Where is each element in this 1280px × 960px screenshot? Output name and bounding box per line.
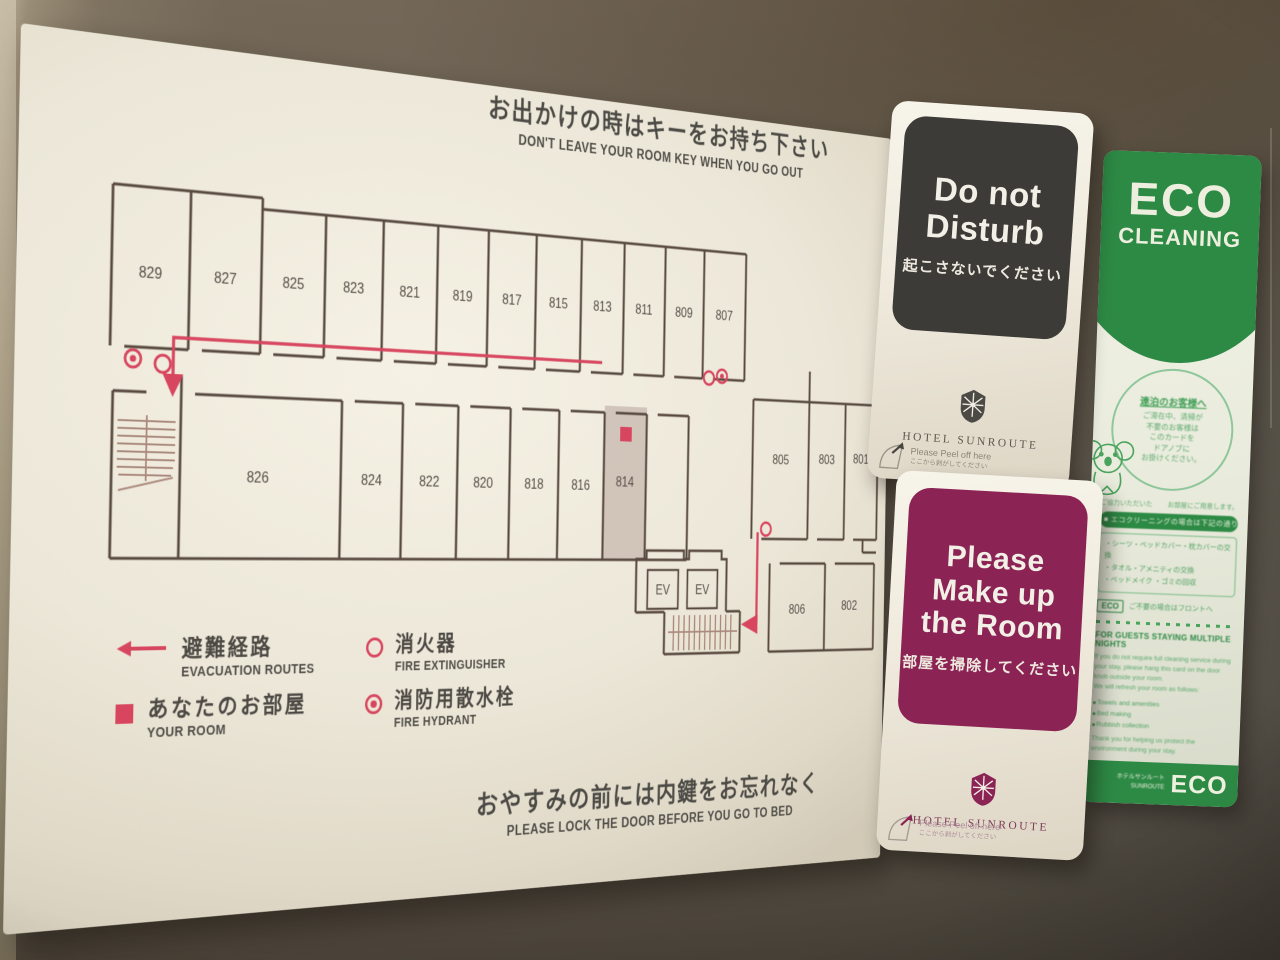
legend-evac-jp: 避難経路 xyxy=(181,635,315,661)
makeup-japanese: 部屋を掃除してください xyxy=(902,650,1078,681)
eco-pill-banner: ■ エコクリーニングの場合は下記の通り xyxy=(1100,511,1239,532)
makeup-panel: Please Make up the Room 部屋を掃除してください xyxy=(897,487,1089,733)
room-label: 809 xyxy=(675,305,693,321)
legend-hyd-jp: 消防用散水栓 xyxy=(394,686,516,713)
room-label: 802 xyxy=(841,599,857,613)
room-label: 820 xyxy=(473,476,493,492)
eco-circle-line: お掛けください。 xyxy=(1141,453,1201,466)
room-label: 805 xyxy=(772,453,789,468)
eco-note: ECO ご不要の場合はフロントへ xyxy=(1096,599,1234,617)
peel-off-note: Please Peel off here ここから剥がしてください xyxy=(884,810,1000,848)
legend-fire-extinguisher: 消火器 FIRE EXTINGUISHER xyxy=(365,631,516,674)
legend-hyd-en: FIRE HYDRANT xyxy=(394,711,515,730)
eco-circle-note: 連泊のお客様へ ご滞在中、清掃が 不要のお客様は このカードを ドアノブに お掛… xyxy=(1109,367,1236,494)
dnd-line2: Disturb xyxy=(925,207,1046,252)
room-label: 829 xyxy=(139,264,163,283)
evacuation-arrow-icon xyxy=(117,637,169,659)
make-up-room-hanger: Please Make up the Room 部屋を掃除してください HOTE… xyxy=(876,470,1104,861)
fire-extinguisher-icon xyxy=(366,637,384,657)
eco-row-right: お部屋にご用意します。 xyxy=(1168,499,1239,512)
stairs-left xyxy=(116,414,175,491)
eco-bullet-list: Towels and amenities Bed making Rubbish … xyxy=(1092,697,1231,735)
eco-circle-heading: 連泊のお客様へ xyxy=(1140,394,1207,411)
eco-english-heading: FOR GUESTS STAYING MULTIPLE NIGHTS xyxy=(1095,630,1234,653)
eco-footer-band: ホテルサンルート SUNROUTE ECO xyxy=(1079,760,1238,808)
plan-walls xyxy=(104,184,881,668)
legend-ext-jp: 消火器 xyxy=(395,632,506,657)
elevator-block: EV EV xyxy=(647,570,717,609)
eco-divider xyxy=(1096,620,1234,628)
floor-plan: EV EV 829 8 xyxy=(91,180,884,679)
dnd-panel: Do not Disturb 起こさないでください xyxy=(891,115,1080,341)
room-label: 811 xyxy=(635,302,652,318)
eco-mini-badge: ECO xyxy=(1096,599,1124,613)
room-label: 819 xyxy=(452,288,472,305)
board-top-title: お出かけの時はキーをお持ち下さい DON'T LEAVE YOUR ROOM K… xyxy=(462,82,850,187)
room-label: 822 xyxy=(419,474,440,490)
room-label: 823 xyxy=(343,280,364,298)
room-label: 825 xyxy=(282,275,304,293)
floor-map-board: お出かけの時はキーをお持ち下さい DON'T LEAVE YOUR ROOM K… xyxy=(3,23,891,935)
dnd-japanese: 起こさないでください xyxy=(902,255,1063,287)
legend-ext-en: FIRE EXTINGUISHER xyxy=(395,656,506,673)
eco-row-left: ご協力いただいた xyxy=(1100,496,1152,508)
eco-footer-logo: ECO xyxy=(1170,770,1228,801)
room-label: 801 xyxy=(853,453,869,467)
board-bottom-title: おやすみの前には内鍵をお忘れなく PLEASE LOCK THE DOOR BE… xyxy=(450,762,840,845)
eco-cleaning-card: ECO CLEANING 連泊のお客様へ ご滞在中、清掃が 不要のお客様は この… xyxy=(1079,150,1262,808)
eco-body: 連泊のお客様へ ご滞在中、清掃が 不要のお客様は このカードを ドアノブに お掛… xyxy=(1081,366,1254,760)
room-label: 816 xyxy=(571,478,590,493)
room-label: 826 xyxy=(246,470,268,487)
sunroute-emblem-icon xyxy=(967,770,999,808)
room-label: 807 xyxy=(716,308,733,324)
eco-header-title: ECO CLEANING xyxy=(1100,174,1261,254)
do-not-disturb-hanger: Do not Disturb 起こさないでください HOTEL SUNROUTE… xyxy=(867,100,1095,491)
peel-corner-icon xyxy=(875,438,907,472)
eco-footer-brand: ホテルサンルート SUNROUTE xyxy=(1116,773,1165,793)
eco-english-footer-note: Thank you for helping us protect the env… xyxy=(1091,734,1230,759)
legend-evac-en: EVACUATION ROUTES xyxy=(181,661,314,680)
sunroute-emblem-icon xyxy=(957,387,989,425)
eco-title: ECO xyxy=(1101,174,1261,226)
room-label: 803 xyxy=(819,453,835,468)
eco-row-note: ご協力いただいた お部屋にご用意します。 xyxy=(1100,496,1238,511)
peel-corner-icon xyxy=(884,810,916,844)
room-label: 814 xyxy=(616,475,635,490)
eco-english-paragraph: If you do not require full cleaning serv… xyxy=(1093,652,1232,698)
stairs-right xyxy=(668,614,738,650)
your-room-icon xyxy=(115,704,133,724)
evacuation-route-arrows xyxy=(157,337,761,645)
elevator-label: EV xyxy=(695,583,710,598)
legend-room-jp: あなたのお部屋 xyxy=(147,693,307,723)
room-label: 818 xyxy=(524,477,543,493)
your-room-marker xyxy=(620,427,632,442)
fire-equipment-markers xyxy=(122,335,774,536)
makeup-line3: the Room xyxy=(920,606,1064,647)
eco-footer-brand-en: SUNROUTE xyxy=(1116,782,1164,793)
room-label: 806 xyxy=(789,603,806,617)
room-label: 817 xyxy=(502,292,522,309)
legend-your-room: あなたのお部屋 YOUR ROOM xyxy=(115,693,314,742)
room-label: 821 xyxy=(399,284,420,301)
elevator-label: EV xyxy=(656,583,671,598)
legend-evacuation-routes: 避難経路 EVACUATION ROUTES xyxy=(116,635,315,681)
makeup-line1: Please xyxy=(946,540,1046,579)
eco-note-text: ご不要の場合はフロントへ xyxy=(1129,601,1213,614)
legend-room-en: YOUR ROOM xyxy=(147,719,307,741)
plan-legend: 避難経路 EVACUATION ROUTES あなたのお部屋 YOUR ROOM… xyxy=(115,629,658,742)
room-numbers: 829 827 825 823 821 819 817 815 813 811 … xyxy=(132,264,871,626)
room-label: 824 xyxy=(361,473,382,489)
legend-fire-hydrant: 消防用散水栓 FIRE HYDRANT xyxy=(364,686,516,731)
room-label: 813 xyxy=(593,299,612,315)
room-label: 827 xyxy=(214,270,237,288)
room-label: 815 xyxy=(549,296,568,313)
wall-reflection-line xyxy=(1270,128,1272,428)
eco-service-box: ・シーツ・ベッドカバー・枕カバーの交換 ・タオル・アメニティの交換 ・ベッドメイ… xyxy=(1097,532,1237,597)
fire-hydrant-icon xyxy=(364,694,382,715)
